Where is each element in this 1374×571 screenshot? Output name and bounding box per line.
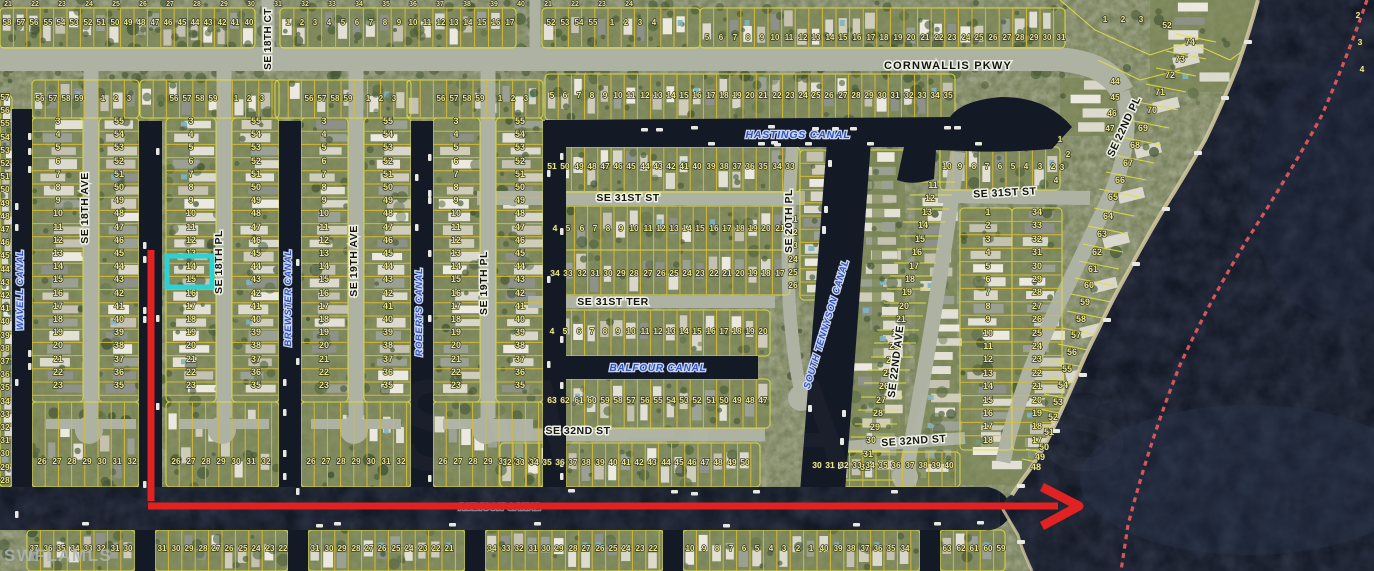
svg-text:4: 4 — [652, 18, 657, 27]
svg-text:24: 24 — [85, 1, 93, 8]
svg-text:13: 13 — [666, 326, 676, 336]
svg-text:59: 59 — [476, 94, 485, 103]
svg-text:27: 27 — [364, 544, 374, 553]
svg-text:23: 23 — [186, 380, 196, 390]
svg-text:56: 56 — [0, 105, 10, 115]
svg-text:12: 12 — [53, 235, 63, 245]
svg-text:30: 30 — [324, 544, 334, 553]
svg-text:30: 30 — [877, 90, 887, 100]
svg-text:9: 9 — [619, 223, 624, 233]
svg-text:5: 5 — [566, 223, 571, 233]
svg-text:2: 2 — [624, 18, 629, 27]
svg-text:36: 36 — [873, 544, 883, 553]
svg-text:52: 52 — [547, 18, 556, 27]
svg-text:17: 17 — [706, 90, 716, 100]
svg-text:34: 34 — [487, 544, 497, 553]
svg-text:3: 3 — [392, 94, 397, 103]
svg-text:6: 6 — [577, 326, 582, 336]
svg-text:10: 10 — [613, 90, 623, 100]
svg-text:SE 31ST TER: SE 31ST TER — [577, 296, 648, 308]
svg-text:27: 27 — [321, 456, 331, 466]
svg-text:46: 46 — [383, 235, 393, 245]
svg-text:34: 34 — [550, 268, 560, 278]
svg-text:69: 69 — [1138, 123, 1148, 133]
svg-text:21: 21 — [444, 544, 454, 553]
svg-text:28: 28 — [67, 456, 77, 466]
svg-text:SWFLAMLS: SWFLAMLS — [392, 352, 1129, 498]
svg-text:29: 29 — [351, 456, 361, 466]
svg-text:24: 24 — [621, 544, 631, 553]
svg-text:4: 4 — [453, 129, 458, 139]
svg-text:63: 63 — [942, 544, 952, 553]
svg-text:9: 9 — [397, 18, 402, 27]
svg-text:42: 42 — [251, 288, 261, 298]
svg-text:48: 48 — [137, 18, 146, 27]
svg-text:21: 21 — [4, 1, 12, 8]
svg-text:ROBERTS CANAL: ROBERTS CANAL — [414, 268, 425, 357]
svg-text:47: 47 — [515, 222, 525, 232]
svg-text:54: 54 — [57, 18, 66, 27]
svg-text:29: 29 — [1030, 33, 1039, 42]
svg-text:60: 60 — [1084, 280, 1094, 290]
svg-text:15: 15 — [53, 274, 63, 284]
svg-text:50: 50 — [515, 182, 525, 192]
svg-text:48: 48 — [0, 211, 10, 221]
svg-text:20: 20 — [735, 268, 745, 278]
svg-text:55: 55 — [0, 118, 10, 128]
svg-text:4: 4 — [1360, 64, 1365, 74]
svg-text:5: 5 — [321, 142, 326, 152]
svg-text:3: 3 — [127, 94, 132, 103]
svg-text:3: 3 — [524, 94, 529, 103]
svg-text:3: 3 — [188, 116, 193, 126]
svg-text:11: 11 — [983, 341, 993, 351]
svg-text:51: 51 — [547, 161, 557, 171]
svg-text:17: 17 — [506, 18, 515, 27]
svg-text:33: 33 — [0, 409, 10, 419]
svg-text:63: 63 — [1097, 229, 1107, 239]
svg-text:18: 18 — [732, 326, 742, 336]
svg-text:4: 4 — [769, 544, 774, 553]
svg-text:19: 19 — [732, 90, 742, 100]
svg-text:27: 27 — [52, 456, 62, 466]
svg-text:32: 32 — [1032, 234, 1042, 244]
svg-text:50: 50 — [111, 18, 120, 27]
svg-text:7: 7 — [985, 161, 990, 171]
svg-text:57: 57 — [1071, 330, 1081, 340]
svg-text:21: 21 — [921, 33, 930, 42]
svg-text:12: 12 — [319, 235, 329, 245]
svg-text:39: 39 — [515, 327, 525, 337]
svg-text:50: 50 — [0, 184, 10, 194]
svg-text:43: 43 — [0, 277, 10, 287]
svg-text:17: 17 — [53, 301, 63, 311]
svg-text:6: 6 — [321, 156, 326, 166]
svg-text:23: 23 — [265, 544, 275, 553]
svg-text:9: 9 — [958, 161, 963, 171]
svg-text:53: 53 — [383, 142, 393, 152]
svg-text:35: 35 — [886, 544, 896, 553]
svg-text:39: 39 — [383, 327, 393, 337]
svg-text:5: 5 — [453, 142, 458, 152]
svg-text:15: 15 — [679, 90, 689, 100]
svg-text:10: 10 — [53, 208, 63, 218]
svg-text:12: 12 — [451, 235, 461, 245]
svg-text:24: 24 — [798, 90, 808, 100]
svg-text:17: 17 — [775, 268, 785, 278]
svg-text:37: 37 — [0, 356, 10, 366]
svg-text:27: 27 — [838, 90, 848, 100]
svg-text:SE 18TH AVE: SE 18TH AVE — [79, 172, 91, 243]
svg-text:20: 20 — [186, 340, 196, 350]
svg-text:21: 21 — [53, 354, 63, 364]
svg-text:3: 3 — [260, 94, 265, 103]
svg-text:51: 51 — [97, 18, 106, 27]
svg-text:45: 45 — [114, 248, 124, 258]
svg-text:29: 29 — [0, 462, 10, 472]
svg-text:8: 8 — [715, 544, 720, 553]
svg-text:40: 40 — [383, 314, 393, 324]
svg-text:15: 15 — [451, 274, 461, 284]
svg-text:28: 28 — [1016, 33, 1025, 42]
svg-text:45: 45 — [383, 248, 393, 258]
svg-text:51: 51 — [251, 169, 261, 179]
svg-text:65: 65 — [1108, 192, 1118, 202]
svg-text:25: 25 — [608, 544, 618, 553]
svg-text:26: 26 — [656, 268, 666, 278]
svg-text:CORNWALLIS PKWY: CORNWALLIS PKWY — [884, 60, 1012, 72]
svg-text:8: 8 — [590, 90, 595, 100]
svg-text:13: 13 — [451, 248, 461, 258]
svg-text:44: 44 — [1110, 76, 1120, 86]
svg-text:37: 37 — [860, 544, 870, 553]
svg-text:10: 10 — [685, 544, 695, 553]
svg-text:37: 37 — [114, 354, 124, 364]
svg-text:26: 26 — [989, 33, 998, 42]
svg-text:18: 18 — [719, 90, 729, 100]
svg-text:9: 9 — [55, 195, 60, 205]
svg-text:64: 64 — [1103, 211, 1113, 221]
svg-text:38: 38 — [383, 340, 393, 350]
svg-text:31: 31 — [246, 456, 256, 466]
svg-text:14: 14 — [826, 33, 835, 42]
svg-text:40: 40 — [251, 314, 261, 324]
svg-text:4: 4 — [55, 129, 60, 139]
svg-text:12: 12 — [799, 33, 808, 42]
svg-text:41: 41 — [114, 301, 124, 311]
svg-text:58: 58 — [196, 94, 205, 103]
svg-text:46: 46 — [164, 18, 173, 27]
svg-text:23: 23 — [418, 544, 428, 553]
svg-text:25: 25 — [669, 268, 679, 278]
svg-text:24: 24 — [251, 544, 261, 553]
svg-text:21: 21 — [544, 1, 552, 8]
svg-text:19: 19 — [748, 223, 758, 233]
svg-text:27: 27 — [643, 268, 653, 278]
svg-text:3: 3 — [782, 544, 787, 553]
svg-text:33: 33 — [785, 161, 795, 171]
svg-text:30: 30 — [1032, 261, 1042, 271]
svg-text:27: 27 — [211, 544, 221, 553]
svg-text:23: 23 — [948, 33, 957, 42]
svg-text:39: 39 — [490, 1, 498, 8]
svg-text:52: 52 — [0, 158, 10, 168]
svg-text:42: 42 — [0, 290, 10, 300]
svg-text:1: 1 — [1103, 14, 1108, 24]
svg-text:26: 26 — [139, 1, 147, 8]
svg-text:41: 41 — [383, 301, 393, 311]
svg-text:4: 4 — [1024, 161, 1029, 171]
svg-text:11: 11 — [186, 222, 196, 232]
svg-text:51: 51 — [0, 171, 10, 181]
svg-text:17: 17 — [867, 33, 876, 42]
svg-text:18: 18 — [319, 314, 329, 324]
svg-text:16: 16 — [692, 90, 702, 100]
svg-text:45: 45 — [251, 248, 261, 258]
svg-text:2: 2 — [1066, 149, 1071, 159]
svg-text:13: 13 — [812, 33, 821, 42]
svg-text:52: 52 — [251, 156, 261, 166]
svg-text:45: 45 — [626, 161, 636, 171]
svg-text:40: 40 — [819, 544, 829, 553]
svg-text:3: 3 — [313, 18, 318, 27]
svg-text:54: 54 — [383, 129, 393, 139]
svg-text:12: 12 — [640, 90, 650, 100]
svg-text:7: 7 — [55, 169, 60, 179]
svg-text:41: 41 — [679, 161, 689, 171]
svg-text:57: 57 — [183, 94, 192, 103]
svg-text:36: 36 — [114, 367, 124, 377]
svg-text:26: 26 — [377, 544, 387, 553]
svg-text:29: 29 — [554, 544, 564, 553]
svg-text:37: 37 — [436, 1, 444, 8]
svg-text:28: 28 — [1032, 287, 1042, 297]
svg-text:12: 12 — [437, 18, 446, 27]
svg-text:47: 47 — [1105, 123, 1115, 133]
svg-text:22: 22 — [431, 544, 441, 553]
svg-text:62: 62 — [1092, 247, 1102, 257]
svg-text:14: 14 — [451, 261, 461, 271]
svg-text:30: 30 — [1043, 33, 1052, 42]
svg-text:42: 42 — [666, 161, 676, 171]
svg-text:45: 45 — [178, 18, 187, 27]
svg-text:4: 4 — [985, 247, 990, 257]
svg-text:31: 31 — [381, 456, 391, 466]
svg-text:33: 33 — [328, 1, 336, 8]
svg-text:33: 33 — [917, 90, 927, 100]
svg-text:22: 22 — [772, 90, 782, 100]
svg-text:31: 31 — [157, 544, 167, 553]
svg-text:54: 54 — [251, 129, 261, 139]
svg-text:8: 8 — [606, 223, 611, 233]
svg-text:45: 45 — [515, 248, 525, 258]
svg-text:16: 16 — [319, 288, 329, 298]
svg-text:17: 17 — [719, 326, 729, 336]
svg-text:49: 49 — [574, 161, 584, 171]
svg-text:58: 58 — [463, 94, 472, 103]
svg-text:48: 48 — [515, 208, 525, 218]
svg-text:8: 8 — [603, 326, 608, 336]
svg-text:55: 55 — [515, 116, 525, 126]
svg-text:14: 14 — [682, 223, 692, 233]
svg-text:41: 41 — [231, 18, 240, 27]
svg-text:1: 1 — [985, 207, 990, 217]
svg-text:22: 22 — [186, 367, 196, 377]
svg-text:31: 31 — [274, 1, 282, 8]
svg-text:HASTINGS CANAL: HASTINGS CANAL — [745, 129, 850, 141]
svg-text:5: 5 — [563, 326, 568, 336]
svg-text:10: 10 — [629, 223, 639, 233]
svg-text:59: 59 — [344, 94, 353, 103]
svg-text:23: 23 — [58, 1, 66, 8]
svg-text:57: 57 — [0, 92, 10, 102]
svg-text:28: 28 — [336, 456, 346, 466]
svg-text:52: 52 — [383, 156, 393, 166]
svg-text:1: 1 — [234, 94, 239, 103]
svg-text:8: 8 — [188, 182, 193, 192]
svg-text:27: 27 — [1003, 33, 1012, 42]
svg-text:38: 38 — [114, 340, 124, 350]
svg-text:21: 21 — [758, 90, 768, 100]
svg-text:2: 2 — [247, 94, 252, 103]
svg-text:53: 53 — [561, 18, 570, 27]
svg-text:38: 38 — [846, 544, 856, 553]
svg-text:49: 49 — [114, 195, 124, 205]
svg-text:9: 9 — [603, 90, 608, 100]
svg-text:9: 9 — [321, 195, 326, 205]
svg-text:58: 58 — [1076, 314, 1086, 324]
svg-text:4: 4 — [321, 129, 326, 139]
svg-text:21: 21 — [319, 354, 329, 364]
svg-text:30: 30 — [0, 448, 10, 458]
svg-text:11: 11 — [627, 90, 636, 100]
svg-text:SE 18TH CT: SE 18TH CT — [263, 8, 274, 70]
svg-text:35: 35 — [382, 1, 390, 8]
svg-text:14: 14 — [319, 261, 329, 271]
svg-text:39: 39 — [251, 327, 261, 337]
svg-text:41: 41 — [251, 301, 261, 311]
svg-text:35: 35 — [758, 161, 768, 171]
svg-text:44: 44 — [640, 161, 650, 171]
svg-text:46: 46 — [515, 235, 525, 245]
svg-text:6: 6 — [719, 33, 724, 42]
svg-text:2: 2 — [379, 94, 384, 103]
svg-text:28: 28 — [201, 456, 211, 466]
svg-text:15: 15 — [186, 274, 196, 284]
svg-text:27: 27 — [581, 544, 591, 553]
svg-text:57: 57 — [49, 94, 58, 103]
svg-text:1: 1 — [286, 18, 291, 27]
svg-text:10: 10 — [626, 326, 636, 336]
svg-text:4: 4 — [550, 326, 555, 336]
svg-text:16: 16 — [451, 288, 461, 298]
svg-text:55: 55 — [44, 18, 53, 27]
svg-text:12: 12 — [656, 223, 666, 233]
svg-text:20: 20 — [761, 223, 771, 233]
svg-text:21: 21 — [896, 314, 906, 324]
svg-text:26: 26 — [171, 456, 181, 466]
svg-text:33: 33 — [563, 268, 573, 278]
svg-text:5: 5 — [188, 142, 193, 152]
svg-text:20: 20 — [53, 340, 63, 350]
svg-text:29: 29 — [184, 544, 194, 553]
svg-text:26: 26 — [595, 544, 605, 553]
svg-text:35: 35 — [114, 380, 124, 390]
svg-text:22: 22 — [319, 367, 329, 377]
svg-text:19: 19 — [186, 327, 196, 337]
svg-text:42: 42 — [218, 18, 227, 27]
svg-text:46: 46 — [114, 235, 124, 245]
svg-text:9: 9 — [760, 33, 765, 42]
svg-text:40: 40 — [515, 314, 525, 324]
svg-text:10: 10 — [942, 161, 952, 171]
svg-text:5: 5 — [985, 261, 990, 271]
svg-text:11: 11 — [641, 326, 650, 336]
svg-text:24: 24 — [1032, 341, 1042, 351]
svg-text:19: 19 — [748, 268, 758, 278]
svg-text:38: 38 — [0, 343, 10, 353]
svg-text:43: 43 — [515, 274, 525, 284]
svg-text:11: 11 — [644, 223, 653, 233]
svg-text:48: 48 — [114, 208, 124, 218]
svg-text:49: 49 — [383, 195, 393, 205]
svg-text:17: 17 — [722, 223, 732, 233]
svg-text:15: 15 — [839, 33, 848, 42]
svg-text:49: 49 — [251, 195, 261, 205]
svg-text:2: 2 — [300, 18, 305, 27]
svg-text:14: 14 — [679, 326, 689, 336]
svg-text:26: 26 — [788, 280, 798, 290]
svg-text:2: 2 — [114, 94, 119, 103]
svg-text:13: 13 — [653, 90, 663, 100]
svg-text:21: 21 — [722, 268, 732, 278]
svg-text:34: 34 — [900, 544, 910, 553]
svg-text:18: 18 — [880, 33, 889, 42]
svg-text:47: 47 — [251, 222, 261, 232]
svg-text:WAVELL CANAL: WAVELL CANAL — [15, 250, 26, 331]
svg-text:14: 14 — [53, 261, 63, 271]
svg-text:55: 55 — [114, 116, 124, 126]
svg-text:19: 19 — [319, 327, 329, 337]
svg-text:40: 40 — [692, 161, 702, 171]
svg-text:50: 50 — [251, 182, 261, 192]
svg-text:39: 39 — [0, 330, 10, 340]
svg-text:11: 11 — [423, 18, 432, 27]
svg-text:19: 19 — [745, 326, 755, 336]
svg-text:10: 10 — [983, 328, 993, 338]
svg-text:51: 51 — [383, 169, 393, 179]
svg-text:22: 22 — [709, 268, 719, 278]
svg-text:12: 12 — [925, 193, 935, 203]
svg-text:55: 55 — [251, 116, 261, 126]
svg-text:6: 6 — [355, 18, 360, 27]
svg-text:37: 37 — [251, 354, 261, 364]
svg-text:9: 9 — [453, 195, 458, 205]
svg-text:56: 56 — [36, 94, 45, 103]
svg-text:59: 59 — [1080, 297, 1090, 307]
svg-text:46: 46 — [251, 235, 261, 245]
svg-text:14: 14 — [186, 261, 196, 271]
svg-text:36: 36 — [745, 161, 755, 171]
svg-text:20: 20 — [907, 33, 916, 42]
svg-text:13: 13 — [53, 248, 63, 258]
svg-text:28: 28 — [0, 475, 10, 485]
svg-text:6: 6 — [55, 156, 60, 166]
svg-text:31: 31 — [310, 544, 320, 553]
svg-text:25: 25 — [391, 544, 401, 553]
svg-text:56: 56 — [305, 94, 314, 103]
svg-text:39: 39 — [114, 327, 124, 337]
